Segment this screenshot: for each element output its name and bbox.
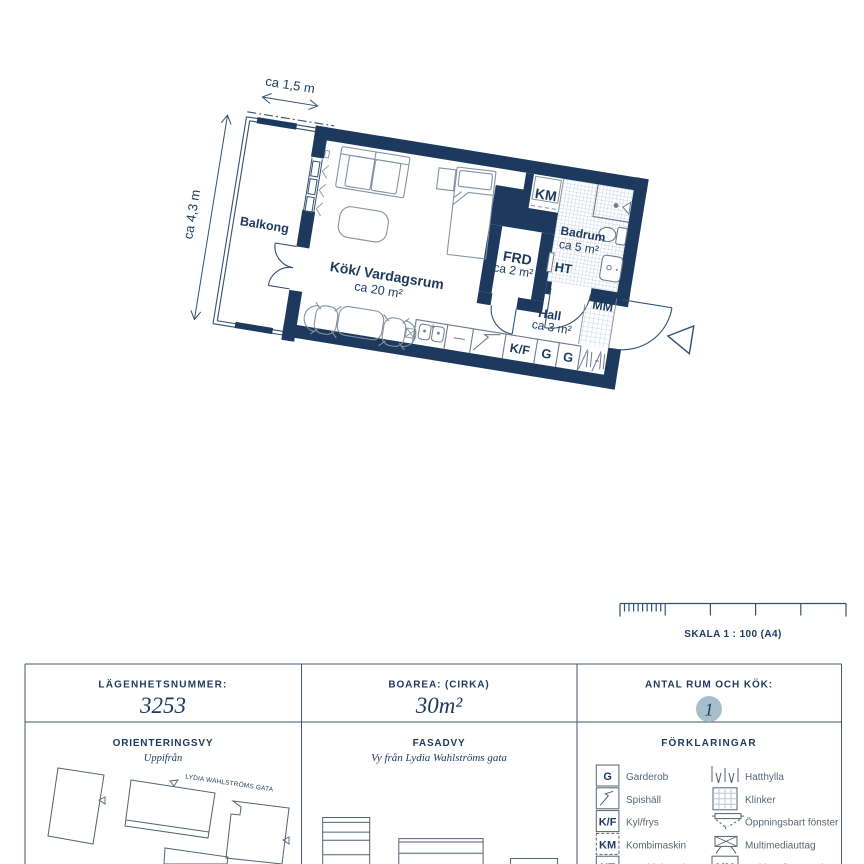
svg-text:Spishäll: Spishäll: [626, 795, 661, 806]
svg-text:Hatthylla: Hatthylla: [745, 772, 784, 783]
svg-text:Multimediauttag: Multimediauttag: [745, 840, 816, 851]
svg-text:Öppningsbart fönster: Öppningsbart fönster: [745, 817, 839, 829]
svg-text:Kyl/frys: Kyl/frys: [626, 818, 659, 829]
svg-text:30m²: 30m²: [415, 693, 464, 718]
svg-text:3253: 3253: [139, 693, 186, 718]
svg-text:Vy från Lydia Wahlströms gata: Vy från Lydia Wahlströms gata: [371, 752, 507, 764]
svg-text:Garderob: Garderob: [626, 772, 669, 783]
svg-text:Kombimaskin: Kombimaskin: [626, 840, 686, 851]
svg-text:ORIENTERINGSVY: ORIENTERINGSVY: [113, 738, 214, 749]
svg-text:FÖRKLARINGAR: FÖRKLARINGAR: [661, 736, 757, 749]
svg-text:LÄGENHETSNUMMER:: LÄGENHETSNUMMER:: [98, 678, 227, 691]
svg-text:SKALA 1 : 100 (A4): SKALA 1 : 100 (A4): [684, 629, 781, 640]
svg-text:1: 1: [705, 700, 714, 720]
svg-text:K/F: K/F: [599, 817, 617, 829]
svg-text:Uppifrån: Uppifrån: [144, 753, 183, 764]
svg-text:G: G: [603, 771, 612, 783]
svg-text:BOAREA: (CIRKA): BOAREA: (CIRKA): [388, 680, 489, 691]
svg-text:KM: KM: [599, 839, 616, 851]
svg-text:ANTAL RUM OCH KÖK:: ANTAL RUM OCH KÖK:: [645, 678, 773, 691]
svg-text:FASADVY: FASADVY: [413, 738, 466, 749]
svg-text:HT: HT: [554, 259, 574, 277]
svg-text:Klinker: Klinker: [745, 795, 776, 806]
